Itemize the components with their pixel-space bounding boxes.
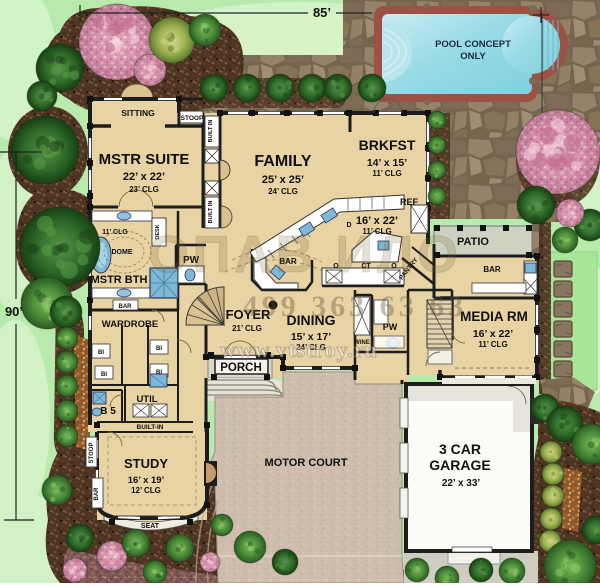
svg-text:16’ x 19’: 16’ x 19’ <box>128 475 164 486</box>
svg-text:BAR: BAR <box>94 487 100 501</box>
svg-text:499 363 63 63: 499 363 63 63 <box>243 290 468 323</box>
svg-text:BI: BI <box>101 372 107 378</box>
svg-text:BAR: BAR <box>483 265 501 274</box>
svg-text:POOL CONCEPT: POOL CONCEPT <box>435 39 511 50</box>
svg-text:MOTOR COURT: MOTOR COURT <box>265 457 348 469</box>
svg-text:22’ x 33’: 22’ x 33’ <box>442 478 481 489</box>
svg-text:11’ CLG: 11’ CLG <box>478 340 507 349</box>
svg-text:24’ CLG: 24’ CLG <box>268 187 298 196</box>
svg-text:14’ x 15’: 14’ x 15’ <box>367 157 407 169</box>
svg-text:16’ x 22’: 16’ x 22’ <box>473 328 513 340</box>
svg-text:MSTR BTH: MSTR BTH <box>91 274 148 286</box>
svg-text:PATIO: PATIO <box>457 236 489 248</box>
svg-text:23’ CLG: 23’ CLG <box>129 185 159 194</box>
svg-text:BUILT IN: BUILT IN <box>208 120 214 143</box>
svg-text:B 5: B 5 <box>100 406 116 417</box>
svg-text:MSTR SUITE: MSTR SUITE <box>99 151 190 168</box>
svg-text:www.vtstroy.ru: www.vtstroy.ru <box>220 337 378 362</box>
svg-text:BI: BI <box>98 350 104 356</box>
svg-text:UTIL: UTIL <box>136 394 157 405</box>
svg-text:GARAGE: GARAGE <box>429 457 490 473</box>
svg-text:ONLY: ONLY <box>460 51 486 62</box>
svg-text:BI: BI <box>156 370 162 376</box>
svg-text:STOOP: STOOP <box>89 443 95 464</box>
svg-text:SITTING: SITTING <box>121 108 155 118</box>
svg-text:85’: 85’ <box>313 5 331 20</box>
svg-text:BRKFST: BRKFST <box>359 137 416 153</box>
svg-text:BAR: BAR <box>119 304 133 310</box>
svg-text:ОПАВ ИЛО: ОПАВ ИЛО <box>148 226 462 284</box>
svg-text:21’ CLG: 21’ CLG <box>232 324 262 333</box>
svg-text:STUDY: STUDY <box>124 456 168 471</box>
svg-text:BUILT-IN: BUILT-IN <box>137 424 164 431</box>
svg-text:22’ x 22’: 22’ x 22’ <box>123 171 165 183</box>
svg-text:11’ CLG: 11’ CLG <box>372 169 401 178</box>
svg-text:SEAT: SEAT <box>141 523 160 530</box>
svg-text:BI: BI <box>156 346 162 352</box>
svg-text:PW: PW <box>383 322 398 332</box>
svg-text:DOME: DOME <box>112 249 133 256</box>
svg-text:12’ CLG: 12’ CLG <box>131 486 161 495</box>
svg-text:WARDROBE: WARDROBE <box>102 319 158 330</box>
svg-text:3 CAR: 3 CAR <box>439 441 481 457</box>
svg-text:FAMILY: FAMILY <box>254 153 312 170</box>
svg-text:11’ CLG: 11’ CLG <box>102 229 128 236</box>
svg-text:90’: 90’ <box>5 304 23 319</box>
svg-text:BUILT IN: BUILT IN <box>208 201 214 224</box>
svg-text:PORCH: PORCH <box>220 362 262 374</box>
svg-text:MEDIA RM: MEDIA RM <box>460 309 528 324</box>
svg-text:STOOP: STOOP <box>181 115 204 122</box>
svg-text:25’ x 25’: 25’ x 25’ <box>262 174 304 186</box>
svg-text:REF: REF <box>400 197 419 207</box>
